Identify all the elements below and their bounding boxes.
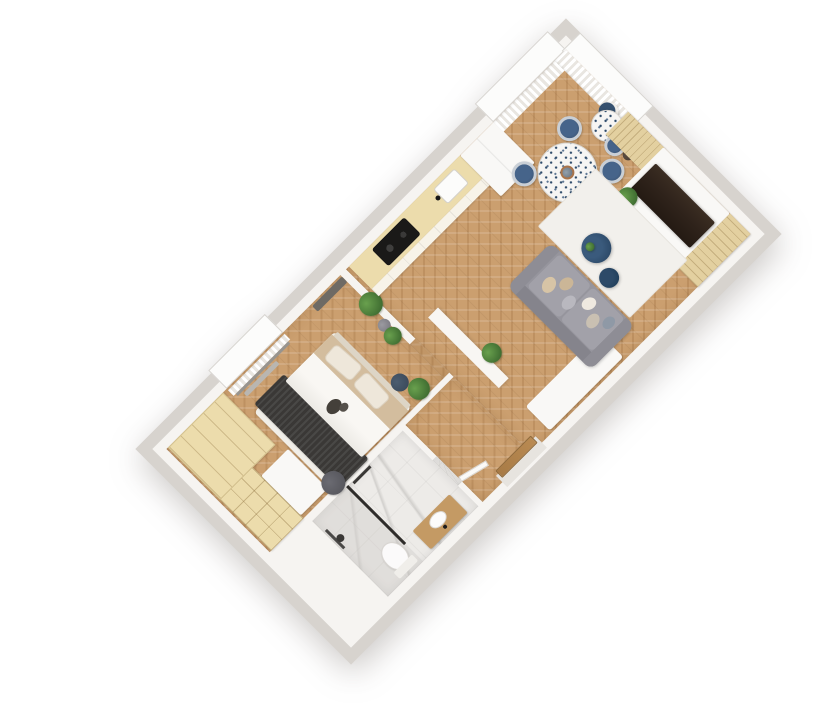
dining-chair-4: [552, 111, 587, 146]
floorplan-canvas: [0, 0, 827, 726]
dining-chair-1: [507, 156, 542, 191]
apartment-floor-plan: [152, 35, 764, 647]
